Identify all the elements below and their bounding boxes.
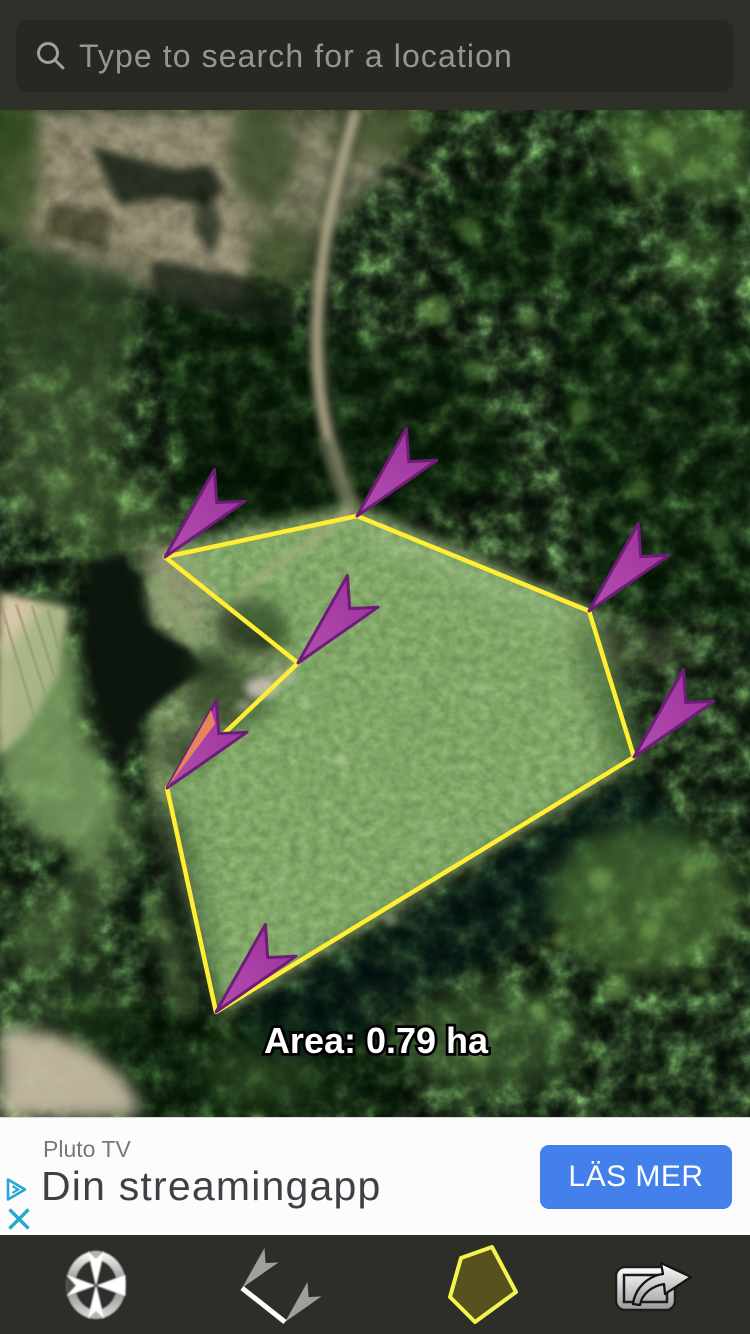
svg-text:Area: 0.79 ha: Area: 0.79 ha [264, 1020, 489, 1061]
